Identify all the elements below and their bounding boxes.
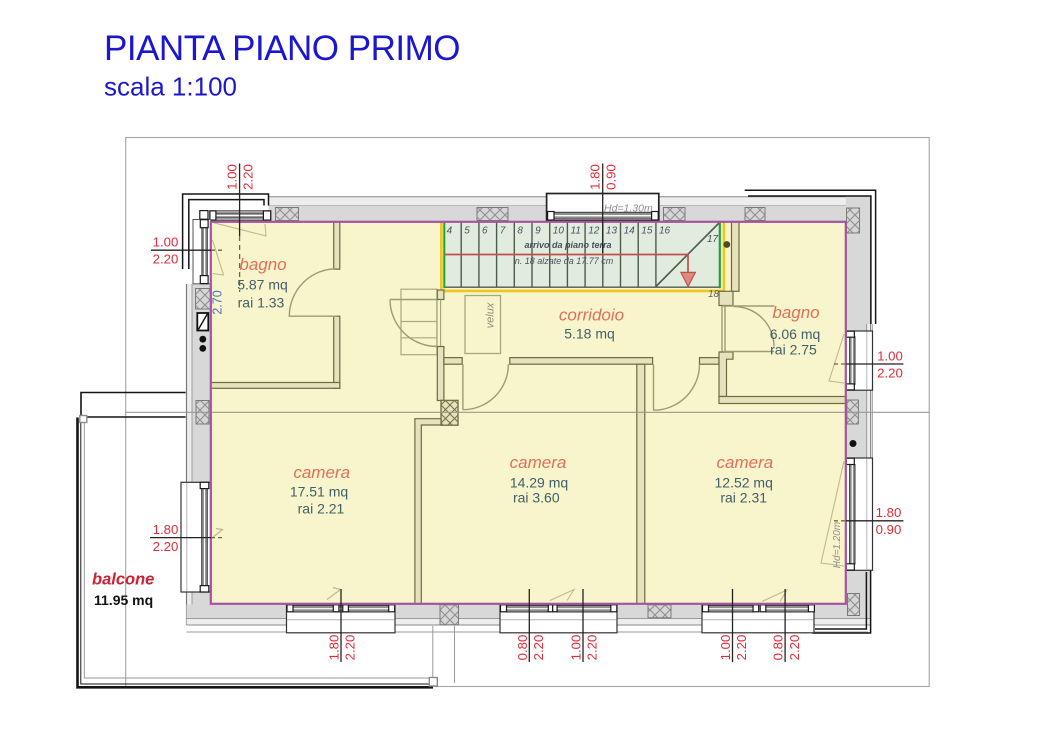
svg-text:4: 4 [447,226,453,237]
svg-text:1.00: 1.00 [877,348,903,363]
svg-text:1.80: 1.80 [327,635,342,661]
svg-text:0.80: 0.80 [515,635,530,661]
svg-text:1.00: 1.00 [718,635,733,661]
svg-text:bagno: bagno [772,303,819,322]
svg-text:11.95 mq: 11.95 mq [94,592,153,608]
svg-text:2.20: 2.20 [585,635,600,661]
svg-text:Hd=1.20m: Hd=1.20m [832,522,843,568]
svg-text:5.87 mq: 5.87 mq [237,277,288,293]
svg-text:0.90: 0.90 [876,522,902,537]
svg-text:balcone: balcone [92,571,154,589]
svg-text:rai 1.33: rai 1.33 [238,295,285,311]
svg-text:2.20: 2.20 [153,252,179,267]
svg-text:2.20: 2.20 [343,635,358,661]
svg-text:6: 6 [482,226,488,237]
svg-text:11: 11 [571,226,581,237]
svg-text:velux: velux [485,302,497,328]
svg-text:rai 2.31: rai 2.31 [720,490,767,506]
svg-text:0.90: 0.90 [604,164,619,190]
svg-text:0.80: 0.80 [771,635,786,661]
svg-text:14.29 mq: 14.29 mq [510,475,568,491]
svg-text:1.00: 1.00 [569,635,584,661]
svg-text:18: 18 [708,289,720,300]
svg-text:1.80: 1.80 [876,505,902,520]
svg-text:14: 14 [624,226,636,237]
svg-text:12.52 mq: 12.52 mq [715,475,773,491]
svg-text:2.70: 2.70 [210,290,224,314]
svg-text:10: 10 [553,226,565,237]
svg-text:1.00: 1.00 [224,164,239,190]
svg-text:13: 13 [606,226,618,237]
svg-text:rai 2.21: rai 2.21 [298,501,345,517]
svg-text:2.20: 2.20 [734,635,749,661]
svg-text:corridoio: corridoio [559,306,624,325]
svg-text:bagno: bagno [239,255,286,274]
svg-text:1.80: 1.80 [153,522,179,537]
svg-text:2.20: 2.20 [241,164,256,190]
svg-text:17: 17 [707,234,719,245]
svg-text:2.20: 2.20 [787,635,802,661]
svg-text:camera: camera [717,453,774,472]
svg-text:8: 8 [517,226,523,237]
svg-text:PIANTA PIANO PRIMO: PIANTA PIANO PRIMO [104,29,460,68]
svg-text:17.51 mq: 17.51 mq [290,484,348,500]
svg-text:5.18 mq: 5.18 mq [564,326,615,342]
svg-text:12: 12 [588,226,600,237]
svg-text:5: 5 [464,226,470,237]
svg-text:2.20: 2.20 [877,365,903,380]
svg-text:16: 16 [659,226,671,237]
svg-text:2.20: 2.20 [153,539,179,554]
svg-text:Hd=1.30m: Hd=1.30m [604,203,653,215]
svg-text:arrivo da piano terra: arrivo da piano terra [524,240,611,250]
svg-text:camera: camera [293,463,350,482]
svg-text:1.80: 1.80 [587,164,602,190]
svg-text:1.00: 1.00 [153,235,179,250]
svg-text:camera: camera [510,453,567,472]
svg-text:9: 9 [535,226,541,237]
svg-text:rai 3.60: rai 3.60 [513,490,560,506]
svg-text:6.06 mq: 6.06 mq [770,326,821,342]
svg-text:15: 15 [641,226,653,237]
svg-text:scala 1:100: scala 1:100 [104,72,237,102]
svg-text:7: 7 [500,226,506,237]
svg-text:n. 18 alzate da 17.77 cm: n. 18 alzate da 17.77 cm [515,256,614,266]
svg-text:rai 2.75: rai 2.75 [770,342,817,358]
svg-text:2.20: 2.20 [531,635,546,661]
